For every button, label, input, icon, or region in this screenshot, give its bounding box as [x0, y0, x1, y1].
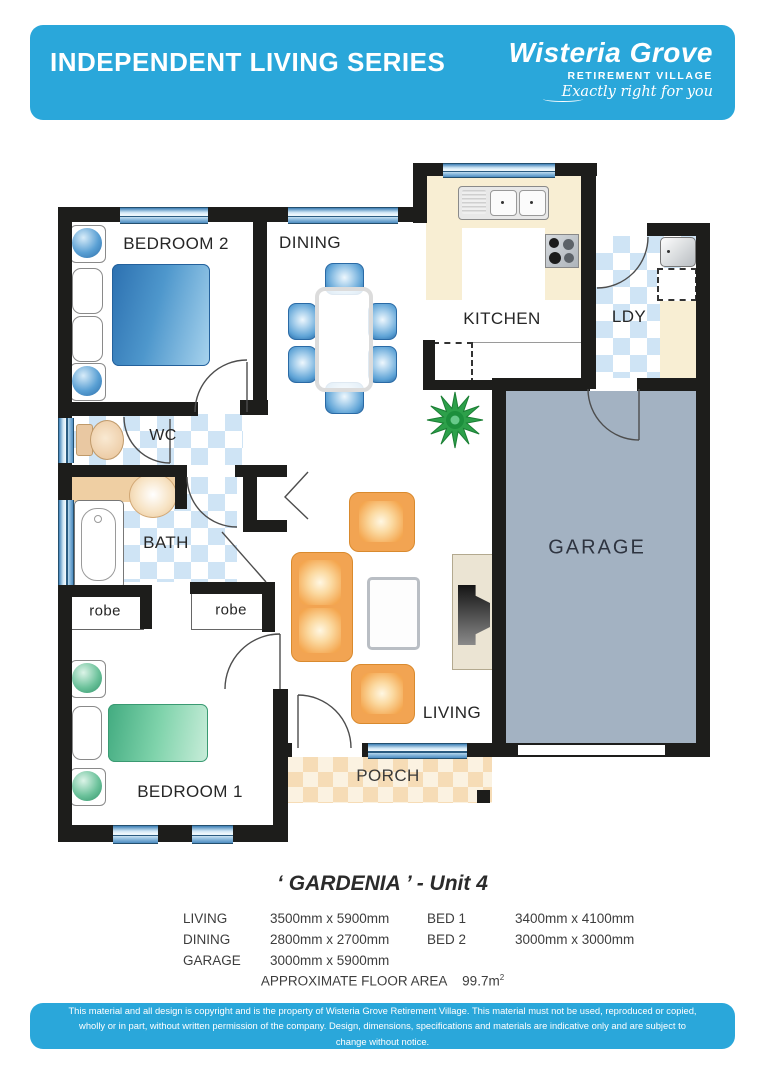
wall	[696, 223, 710, 757]
wall	[262, 582, 275, 632]
brochure-page: INDEPENDENT LIVING SERIES Wisteria Grove…	[0, 0, 765, 1080]
cooktop	[545, 234, 579, 268]
wall	[140, 585, 152, 629]
kitchen-sink	[458, 186, 549, 220]
wall	[423, 340, 435, 390]
garage-door-opening	[518, 745, 665, 755]
room-label-bedroom2: BEDROOM 2	[123, 234, 229, 254]
sofa-cushion	[299, 608, 341, 653]
header-banner: INDEPENDENT LIVING SERIES Wisteria Grove…	[30, 25, 735, 120]
dim-room: DINING	[183, 929, 270, 950]
wall	[175, 465, 187, 509]
room-label-laundry: LDY	[612, 307, 646, 327]
burner	[563, 239, 574, 250]
toilet-bowl	[90, 420, 124, 460]
sofa-cushion	[299, 560, 341, 605]
wall	[253, 222, 267, 403]
room-label-kitchen: KITCHEN	[463, 309, 540, 329]
armchair-cushion	[361, 673, 403, 714]
room-label-wc: WC	[149, 427, 176, 445]
dim-room: BED 2	[427, 929, 515, 950]
brand-logo: Wisteria Grove RETIREMENT VILLAGE Exactl…	[509, 39, 713, 100]
bathtub-drain	[94, 515, 102, 523]
pillow	[72, 268, 103, 314]
front-door-opening	[292, 743, 362, 757]
dimensions-table: LIVING 3500mm x 5900mm BED 1 3400mm x 41…	[183, 908, 660, 971]
window	[192, 825, 233, 844]
floor-area-value: 99.7m	[462, 974, 500, 989]
dining-table	[315, 287, 373, 392]
dishwasher-space	[433, 342, 473, 384]
window	[443, 163, 555, 178]
wall	[637, 378, 710, 391]
armchair	[349, 492, 415, 552]
pillow	[72, 316, 103, 362]
brand-tagline: Exactly right for you	[509, 84, 713, 100]
wall	[492, 388, 506, 757]
window	[58, 418, 74, 463]
dim-size: 2800mm x 2700mm	[270, 929, 427, 950]
window	[368, 743, 467, 759]
room-label-robe-right: robe	[215, 602, 247, 619]
dim-size: 3000mm x 5900mm	[270, 950, 427, 971]
burner	[564, 253, 574, 263]
dim-room: GARAGE	[183, 950, 270, 971]
room-label-bath: BATH	[143, 533, 189, 553]
bedroom2-bed	[112, 264, 210, 366]
porch-post	[477, 790, 490, 803]
room-label-living: LIVING	[423, 703, 481, 723]
floor-area-label: APPROXIMATE FLOOR AREA	[261, 974, 447, 989]
wall	[58, 402, 198, 416]
burner	[549, 252, 561, 264]
bedside-lamp	[72, 771, 102, 801]
floor-area-line: APPROXIMATE FLOOR AREA 99.7m2	[0, 973, 765, 989]
burner	[549, 238, 559, 248]
garage-floor	[506, 391, 696, 743]
window	[113, 825, 158, 844]
window	[58, 500, 74, 585]
room-label-robe-left: robe	[89, 603, 121, 620]
dim-room: BED 1	[427, 908, 515, 929]
sink-drainer	[462, 190, 486, 214]
wall	[58, 825, 288, 842]
dim-size	[515, 950, 660, 971]
bedside-lamp	[72, 366, 102, 396]
dim-room: LIVING	[183, 908, 270, 929]
washer-space	[657, 268, 697, 301]
armchair-cushion	[359, 501, 403, 542]
dim-room	[427, 950, 515, 971]
wall	[58, 465, 187, 477]
bedside-lamp	[72, 228, 102, 258]
brand-subtitle: RETIREMENT VILLAGE	[509, 70, 713, 82]
footer-disclaimer: This material and all design is copyrigh…	[30, 1003, 735, 1050]
wall	[581, 163, 596, 389]
coffee-table	[367, 577, 420, 650]
tub-drain-dot	[667, 250, 670, 253]
sink-drain-dot	[530, 201, 533, 204]
bedroom1-bed	[108, 704, 208, 762]
sofa	[291, 552, 353, 662]
floor-area-sup: 2	[500, 973, 504, 982]
window	[120, 207, 208, 224]
wall	[423, 380, 582, 390]
wall	[245, 520, 287, 532]
wall	[273, 689, 288, 842]
room-label-garage: GARAGE	[548, 537, 646, 560]
plant-icon	[425, 390, 485, 450]
laundry-bench	[660, 300, 696, 380]
dining-chair	[288, 303, 317, 340]
unit-title: ‘ GARDENIA ’ - Unit 4	[0, 872, 765, 896]
armchair	[351, 664, 415, 724]
vanity-basin	[129, 473, 177, 518]
wall	[240, 400, 268, 415]
brand-name: Wisteria Grove	[509, 39, 713, 67]
wall	[58, 585, 142, 597]
laundry-tub	[660, 237, 696, 267]
dining-chair	[288, 346, 317, 383]
room-label-porch: PORCH	[356, 766, 419, 786]
dim-size: 3500mm x 5900mm	[270, 908, 427, 929]
sink-drain-dot	[501, 201, 504, 204]
kitchen-counter-left	[426, 172, 462, 300]
footer-banner: This material and all design is copyrigh…	[30, 1003, 735, 1049]
pillow	[72, 706, 102, 760]
room-label-bedroom1: BEDROOM 1	[137, 782, 243, 802]
dim-size: 3400mm x 4100mm	[515, 908, 660, 929]
room-label-dining: DINING	[279, 233, 341, 253]
dim-size: 3000mm x 3000mm	[515, 929, 660, 950]
window	[288, 207, 398, 224]
bedside-lamp	[72, 663, 102, 693]
page-title: INDEPENDENT LIVING SERIES	[50, 47, 445, 78]
